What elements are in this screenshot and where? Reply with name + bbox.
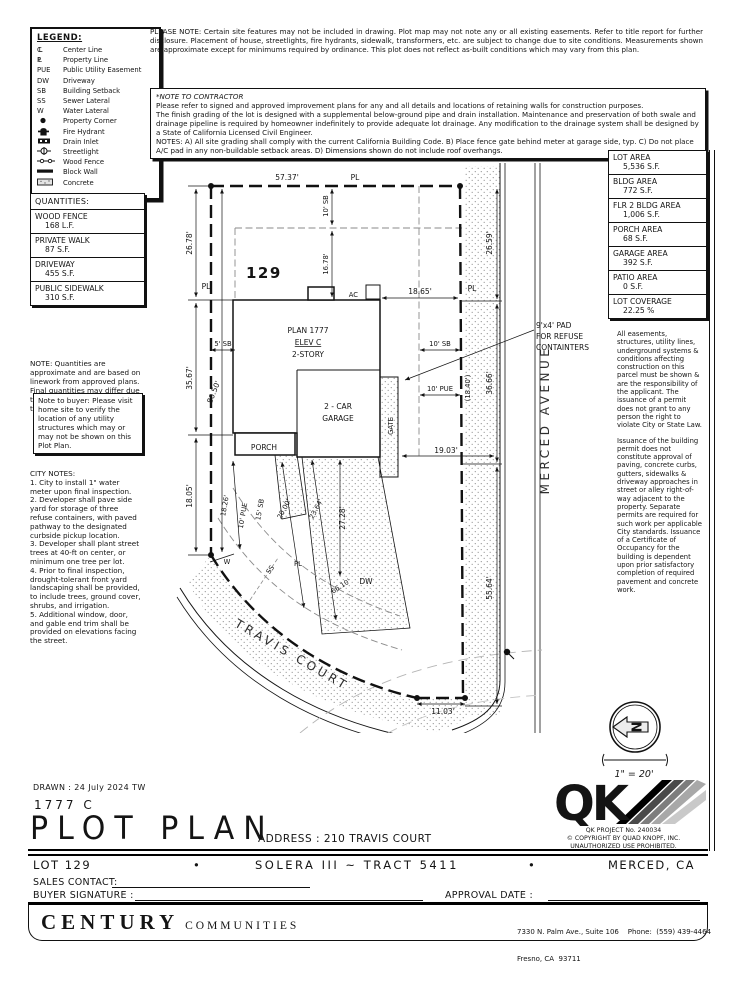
table-row: LOT AREA5,536 S.F. [609, 151, 706, 175]
sales-contact-label: SALES CONTACT: [33, 877, 117, 888]
buyer-signature-line [135, 899, 423, 901]
north-arrow: N [600, 700, 670, 768]
centerline-symbol: CL [37, 46, 59, 54]
dim-label: 10' PUE [427, 385, 453, 393]
address: ADDRESS : 210 TRAVIS COURT [258, 833, 432, 845]
dim-label: 26.78' [185, 231, 194, 255]
driveway-symbol: DW [37, 77, 59, 85]
pl-label: PL [351, 173, 361, 182]
pl-label: PL [294, 560, 302, 568]
approval-date-line [548, 899, 700, 901]
qk-letters: QK [554, 776, 631, 826]
approval-date-label: APPROVAL DATE : [445, 890, 533, 901]
water-lateral-label: W [224, 558, 231, 566]
street-name-merced: MERCED AVENUE [538, 346, 552, 495]
dim-label: (18.40') [464, 374, 472, 401]
city-notes: CITY NOTES: 1. City to install 1" water … [30, 470, 142, 646]
buyer-note: Note to buyer: Please visit home site to… [33, 393, 143, 454]
table-row: LOT COVERAGE22.25 % [609, 295, 706, 318]
dim-label: 36.66' [485, 371, 494, 395]
dim-label: 27.28' [338, 506, 347, 530]
pl-label: PL [202, 282, 212, 291]
quantities-table: QUANTITIES: WOOD FENCE168 L.F. PRIVATE W… [30, 193, 145, 306]
drawn-date: DRAWN : 24 July 2024 TW [33, 783, 146, 792]
city-label: MERCED, CA [608, 858, 695, 872]
pl-label: PL [468, 284, 478, 293]
ac-label: AC [349, 291, 359, 299]
porch-label: PORCH [251, 443, 277, 452]
footer-address: 7330 N. Palm Ave., Suite 106 Phone: (559… [517, 910, 711, 982]
dim-label: 35.67' [185, 366, 194, 390]
dim-label: 10' SB [429, 340, 451, 348]
garage-label: GARAGE [322, 414, 354, 423]
water-symbol: W [37, 107, 59, 115]
dim-label: 57.37' [275, 173, 299, 182]
wood-fence-icon [37, 157, 59, 167]
refuse-pad-label: 9'x4' PAD [536, 321, 572, 330]
lot-number: 129 [246, 264, 282, 282]
dim-label: 18.65' [408, 287, 432, 296]
bullet: • [193, 858, 201, 872]
table-row: DRIVEWAY455 S.F. [31, 258, 144, 282]
dim-label: 15' SB [254, 498, 266, 521]
quantities-title: QUANTITIES: [31, 194, 144, 210]
table-row: BLDG AREA772 S.F. [609, 175, 706, 199]
buyer-signature-label: BUYER SIGNATURE : [33, 890, 134, 901]
divider [28, 849, 708, 856]
dim-label: 18.26' [219, 494, 231, 517]
driveway-label: DW [359, 577, 373, 586]
qk-copyright: © COPYRIGHT BY QUAD KNOPF, INC. [536, 835, 711, 843]
fire-hydrant-icon [37, 126, 59, 138]
century-communities-logo: CENTURYCOMMUNITIES [41, 910, 299, 935]
table-row: GARAGE AREA392 S.F. [609, 247, 706, 271]
table-row: PORCH AREA68 S.F. [609, 223, 706, 247]
legend: LEGEND: CLCenter Line PLProperty Line PU… [30, 27, 161, 200]
north-letter: N [628, 722, 643, 733]
garage-label: 2 - CAR [324, 402, 352, 411]
streetlight-icon [37, 146, 59, 158]
qk-project-no: QK PROJECT No. 240034 [536, 827, 711, 835]
qk-logo: QK [554, 776, 706, 826]
footer: CENTURYCOMMUNITIES 7330 N. Palm Ave., Su… [28, 905, 708, 941]
gate-label: GATE [387, 417, 395, 435]
sales-contact-line [112, 886, 310, 888]
setback-symbol: SB [37, 87, 59, 95]
sheet-right-border [709, 150, 715, 851]
pue-symbol: PUE [37, 66, 59, 74]
dim-label: 5' SB [214, 340, 232, 348]
sewer-lateral-label: SS [265, 564, 277, 576]
block-wall-icon [37, 167, 59, 177]
easements-note: All easements, structures, utility lines… [617, 330, 704, 601]
tract-label: SOLERA III ~ TRACT 5411 [255, 858, 459, 872]
refuse-pad-label: FOR REFUSE [536, 332, 583, 341]
chimney [308, 287, 334, 300]
table-row: PATIO AREA0 S.F. [609, 271, 706, 295]
dim-label: 10' PUE [237, 502, 249, 529]
ac-pad [366, 285, 380, 299]
bullet: • [528, 858, 536, 872]
dim-label: 16.78' [322, 253, 330, 274]
please-note: PLEASE NOTE: Certain site features may n… [150, 27, 703, 55]
table-row: PUBLIC SIDEWALK310 S.F. [31, 282, 144, 305]
dim-label: 11.03' [431, 707, 455, 716]
story-label: 2-STORY [292, 350, 324, 359]
table-row: FLR 2 BLDG AREA1,006 S.F. [609, 199, 706, 223]
sheet-title: PLOT PLAN [30, 810, 275, 848]
dim-label: 18.05' [185, 484, 194, 508]
legend-title: LEGEND: [37, 33, 154, 43]
dim-label: 80.50' [205, 379, 222, 404]
dim-label: 26.59' [485, 231, 494, 255]
dim-label: 19.03' [434, 446, 458, 455]
dim-label: 10' SB [322, 195, 330, 217]
plan-label: PLAN 1777 [287, 326, 328, 335]
concrete-icon [37, 178, 59, 188]
elev-label: ELEV C [295, 338, 321, 347]
plot-drawing: 57.37' PL 26.78' 35.67' 80.50' 18.05' 10… [150, 158, 605, 733]
areas-table: LOT AREA5,536 S.F. BLDG AREA772 S.F. FLR… [608, 150, 707, 319]
table-row: WOOD FENCE168 L.F. [31, 210, 144, 234]
table-row: PRIVATE WALK87 S.F. [31, 234, 144, 258]
sewer-symbol: SS [37, 97, 59, 105]
property-line-symbol: PL [37, 56, 59, 64]
contractor-note-title: *NOTE TO CONTRACTOR [156, 92, 700, 101]
lot-label: LOT 129 [33, 858, 91, 872]
dim-label: 55.64' [485, 576, 494, 600]
contractor-note: *NOTE TO CONTRACTOR Please refer to sign… [150, 88, 706, 159]
